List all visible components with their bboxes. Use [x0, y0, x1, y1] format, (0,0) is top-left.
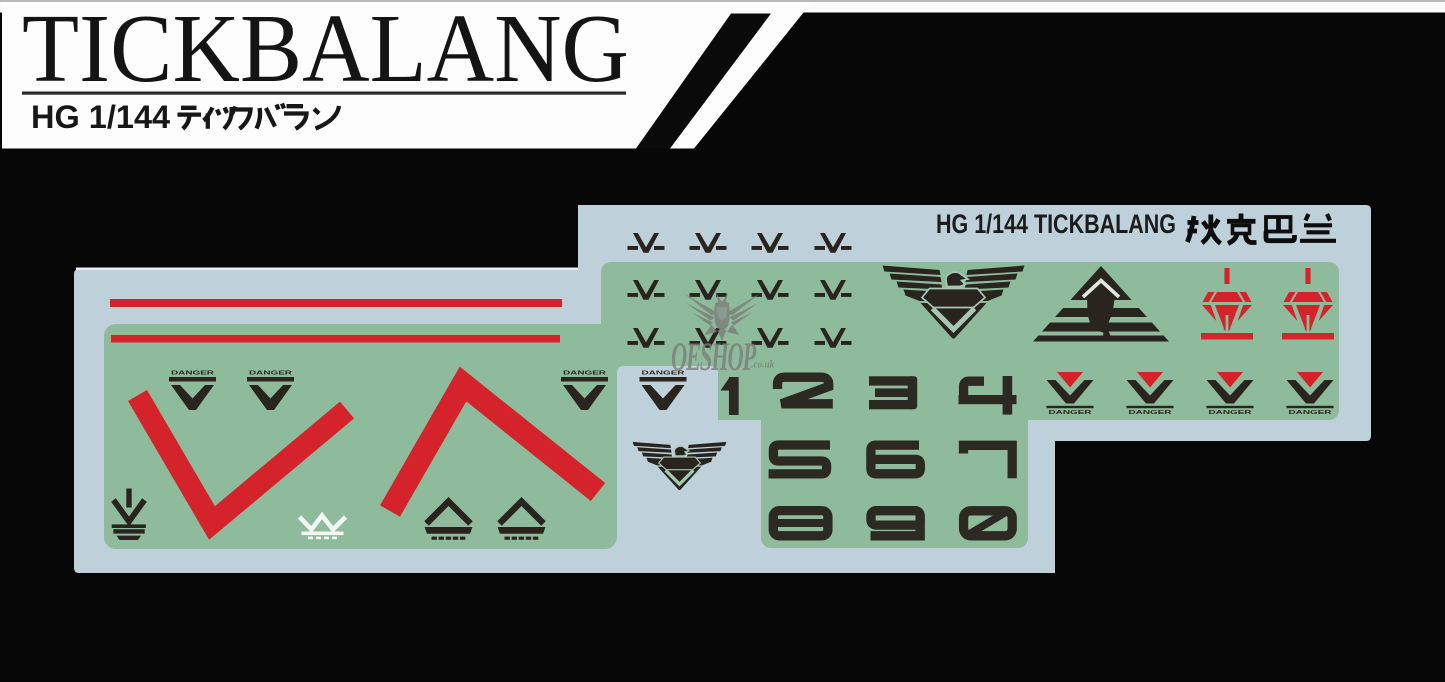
- svg-text:HG 1/144: HG 1/144: [31, 99, 170, 135]
- svg-text:TICKBALANG: TICKBALANG: [22, 0, 629, 102]
- svg-text:HG 1/144 TICKBALANG: HG 1/144 TICKBALANG: [936, 209, 1176, 239]
- svg-text:OESHOP: OESHOP: [671, 335, 756, 379]
- svg-text:.co.uk: .co.uk: [751, 359, 775, 371]
